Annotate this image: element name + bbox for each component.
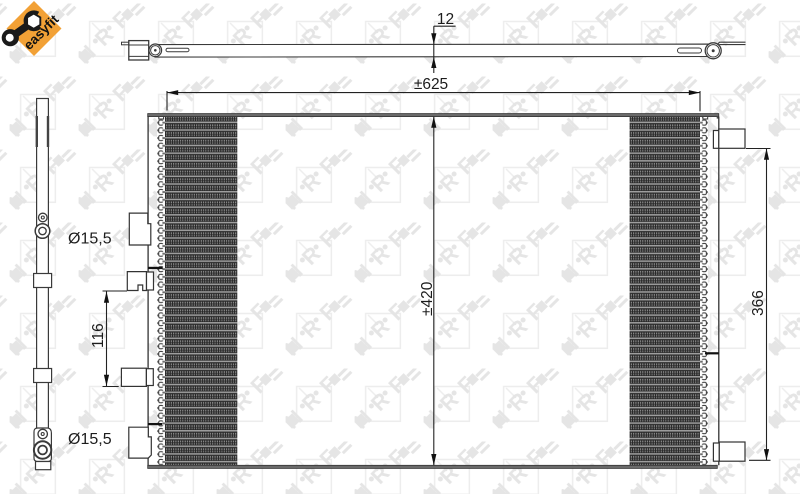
svg-text:±625: ±625	[414, 76, 448, 93]
svg-text:12: 12	[437, 11, 454, 28]
svg-text:366: 366	[750, 290, 767, 316]
svg-text:Ø15,5: Ø15,5	[68, 431, 112, 448]
svg-text:Ø15,5: Ø15,5	[68, 230, 112, 247]
svg-text:116: 116	[90, 323, 107, 348]
